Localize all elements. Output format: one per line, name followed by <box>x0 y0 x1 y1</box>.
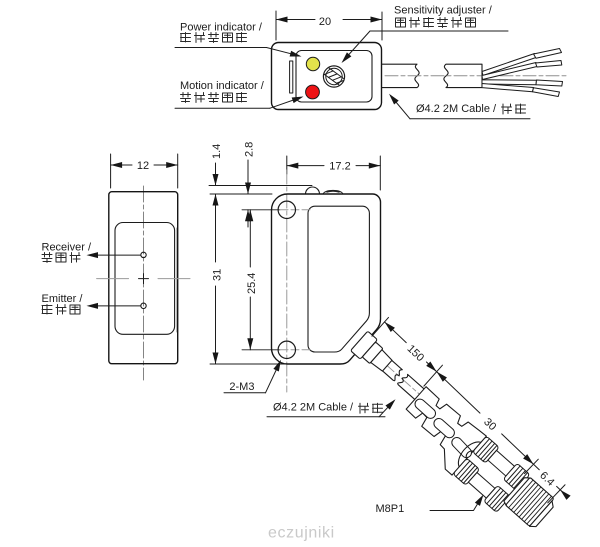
svg-text:30: 30 <box>481 416 498 433</box>
svg-text:Sensitivity adjuster /: Sensitivity adjuster / <box>394 4 493 16</box>
svg-text:Receiver /: Receiver / <box>42 241 92 253</box>
svg-text:Ø4.2 2M Cable /: Ø4.2 2M Cable / <box>416 103 497 115</box>
svg-text:Motion indicator /: Motion indicator / <box>180 80 265 92</box>
svg-text:25.4: 25.4 <box>246 273 258 294</box>
svg-text:Ø4.2 2M Cable /: Ø4.2 2M Cable / <box>273 402 354 414</box>
svg-text:Emitter /: Emitter / <box>42 293 84 305</box>
svg-text:Power indicator /: Power indicator / <box>180 22 263 34</box>
svg-text:2.8: 2.8 <box>244 142 256 157</box>
svg-text:1.4: 1.4 <box>211 144 223 159</box>
svg-text:M8P1: M8P1 <box>376 503 405 515</box>
svg-text:17.2: 17.2 <box>329 161 350 173</box>
svg-text:31: 31 <box>212 269 224 281</box>
svg-text:eczujniki: eczujniki <box>268 525 335 542</box>
svg-text:2-M3: 2-M3 <box>229 381 254 393</box>
svg-text:20: 20 <box>319 16 331 28</box>
svg-text:150: 150 <box>405 343 427 364</box>
svg-text:12: 12 <box>137 160 149 172</box>
